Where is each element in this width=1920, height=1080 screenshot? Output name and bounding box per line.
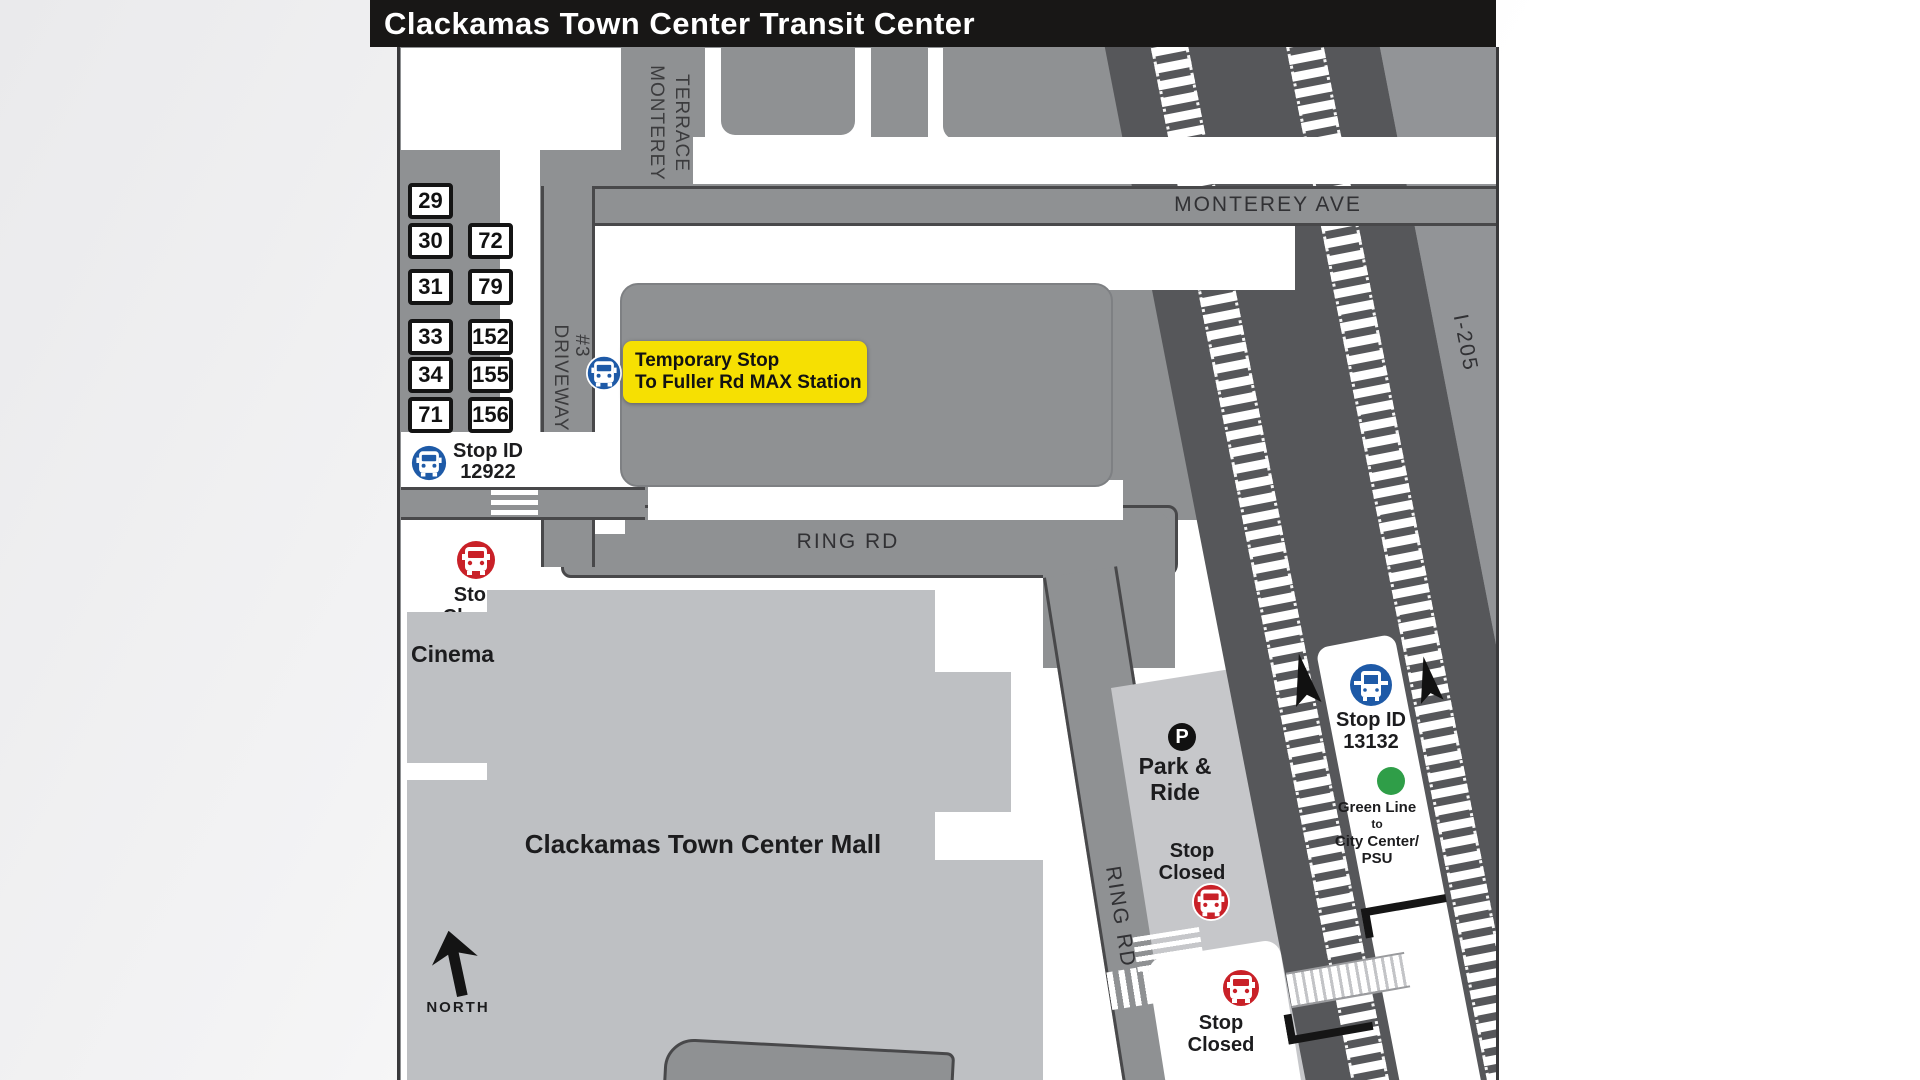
route-badge-72: 72 — [468, 223, 513, 259]
temporary-stop-line1: Temporary Stop — [635, 350, 867, 372]
route-badge-155: 155 — [468, 357, 513, 393]
park-and-ride-line1: Park & — [1115, 753, 1235, 779]
route-badge-30: 30 — [408, 223, 453, 259]
mall-label: Clackamas Town Center Mall — [503, 829, 903, 860]
stop-id-12922-number: 12922 — [448, 462, 528, 483]
crosswalk-west — [491, 490, 538, 517]
parking-icon: P — [1168, 723, 1196, 751]
stop-closed-south: Stop Closed — [1171, 1012, 1271, 1056]
route-badge-152: 152 — [468, 319, 513, 355]
stop-closed-icon-south — [1221, 968, 1261, 1008]
route-badge-33: 33 — [408, 319, 453, 355]
temporary-stop-line2: To Fuller Rd MAX Station — [635, 372, 867, 394]
mall-building-southeast-wing — [935, 860, 1043, 1080]
bus-icon-temporary-stop — [586, 355, 622, 391]
ring-rd-label: RING RD — [793, 530, 903, 554]
green-line-dot — [1377, 767, 1405, 795]
map-title: Clackamas Town Center Transit Center — [384, 6, 975, 41]
monterey-sidewalk — [693, 137, 1496, 184]
green-line-line2: to — [1318, 816, 1436, 833]
stop-id-13132-number: 13132 — [1320, 731, 1422, 753]
stop-closed-icon-west — [456, 540, 496, 580]
route-badge-29: 29 — [408, 183, 453, 219]
transit-map: MONTEREY AVE MONTEREY TERRACE DRIVEWAY #… — [397, 47, 1499, 1080]
route-badge-79: 79 — [468, 269, 513, 305]
monterey-terrace-label-1: MONTEREY — [645, 53, 667, 193]
route-badge-31: 31 — [408, 269, 453, 305]
green-line-line4: PSU — [1318, 850, 1436, 867]
max-train-icon — [1349, 663, 1393, 707]
driveway-inset — [721, 48, 855, 135]
stop-closed-parkride-line2: Closed — [1142, 862, 1242, 884]
stop-id-12922-label: Stop ID — [448, 441, 528, 462]
stop-id-13132: Stop ID 13132 — [1320, 709, 1422, 753]
temporary-stop-callout: Temporary Stop To Fuller Rd MAX Station — [623, 341, 867, 403]
stop-id-12922: Stop ID 12922 — [448, 441, 528, 483]
park-and-ride-line2: Ride — [1115, 779, 1235, 805]
route-badge-156: 156 — [468, 397, 513, 433]
green-line-line1: Green Line — [1318, 799, 1436, 816]
mall-building-east-wing — [935, 672, 1011, 812]
green-line-text: Green Line to City Center/ PSU — [1318, 799, 1436, 867]
park-and-ride-label: Park & Ride — [1115, 753, 1235, 805]
route-badge-34: 34 — [408, 357, 453, 393]
stop-closed-south-line1: Stop — [1171, 1012, 1271, 1034]
driveway-inset-2 — [943, 48, 1043, 140]
stop-closed-parkride-line1: Stop — [1142, 840, 1242, 862]
stop-closed-parkride: Stop Closed — [1142, 840, 1242, 884]
driveway3-label-1: DRIVEWAY — [549, 288, 571, 468]
route-badge-71: 71 — [408, 397, 453, 433]
bus-icon-stop-12922 — [411, 445, 447, 481]
monterey-ave-label: MONTEREY AVE — [1068, 193, 1468, 217]
map-title-bar: Clackamas Town Center Transit Center — [370, 0, 1496, 47]
building-white-top — [595, 226, 1295, 290]
mall-building-lower — [407, 780, 935, 1080]
stop-closed-icon-parkride — [1192, 883, 1230, 921]
block-northwest — [401, 48, 621, 150]
north-label: NORTH — [420, 999, 496, 1016]
stop-id-13132-label: Stop ID — [1320, 709, 1422, 731]
green-line-line3: City Center/ — [1318, 833, 1436, 850]
monterey-terrace-label-2: TERRACE — [670, 53, 692, 193]
stop-closed-south-line2: Closed — [1171, 1034, 1271, 1056]
cinema-label: Cinema — [411, 641, 531, 668]
